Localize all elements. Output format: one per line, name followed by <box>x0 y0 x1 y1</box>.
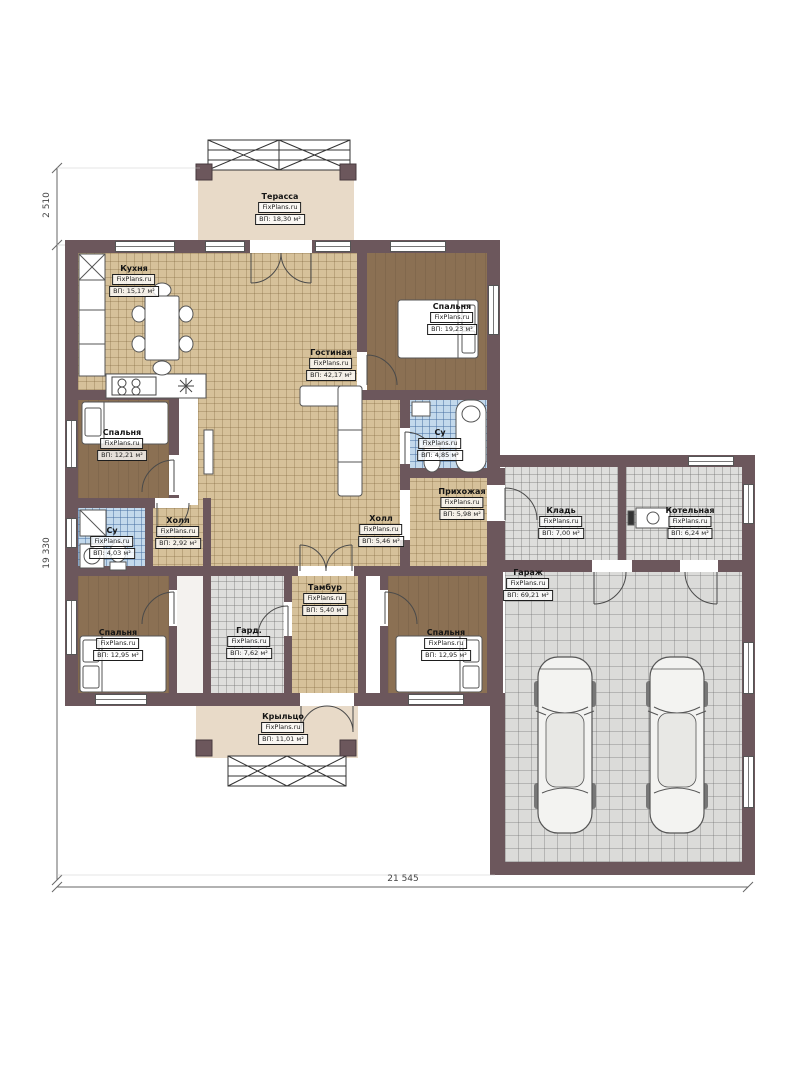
window <box>115 241 175 252</box>
window <box>315 241 351 252</box>
wall-hall-l-right <box>203 498 211 574</box>
door-gap-bedroom-br <box>380 590 388 626</box>
room-area: ВП: 4,03 м² <box>89 548 135 559</box>
window <box>66 420 77 468</box>
room-label-hall-l: Холл FixPlans.ru ВП: 2,92 м² <box>155 516 201 549</box>
wall-bedroom-tr-bottom <box>357 390 500 400</box>
room-name: Спальня <box>421 628 471 637</box>
door-gap-boiler-garage <box>680 560 718 572</box>
floor-garage <box>505 572 742 862</box>
terrace-roof <box>208 140 350 170</box>
wall-bath-r-bottom <box>400 468 500 478</box>
room-name: Спальня <box>97 428 147 437</box>
room-label-hallway: Прихожая FixPlans.ru ВП: 5,98 м² <box>438 487 485 520</box>
wall-bedroom-l-top <box>78 390 177 400</box>
room-name: Терасса <box>255 192 305 201</box>
room-area: ВП: 6,24 м² <box>667 528 713 539</box>
wall-bath-l-right <box>145 498 153 574</box>
room-site: FixPlans.ru <box>261 722 304 733</box>
window <box>408 694 464 705</box>
room-site: FixPlans.ru <box>540 516 583 527</box>
floor-closet <box>177 576 203 694</box>
room-label-bedroom-l: Спальня FixPlans.ru ВП: 12,21 м² <box>97 428 147 461</box>
door-gap-storage-garage <box>592 560 632 572</box>
room-site: FixPlans.ru <box>91 536 134 547</box>
room-area: ВП: 18,30 м² <box>255 214 305 225</box>
room-name: Холл <box>358 514 404 523</box>
floor-plan: Терасса FixPlans.ru ВП: 18,30 м² Кухня F… <box>0 0 792 1080</box>
room-area: ВП: 5,98 м² <box>439 509 485 520</box>
room-name: Кухня <box>109 264 159 273</box>
window <box>66 518 77 548</box>
porch-steps <box>228 756 346 786</box>
room-site: FixPlans.ru <box>100 438 143 449</box>
room-area: ВП: 69,21 м² <box>503 590 553 601</box>
room-name: Гараж <box>503 568 553 577</box>
room-label-terrace: Терасса FixPlans.ru ВП: 18,30 м² <box>255 192 305 225</box>
room-name: Тамбур <box>302 583 348 592</box>
door-gap-bedroom-bl <box>169 590 177 626</box>
wall-mid-horizontal <box>65 566 502 576</box>
wall-wing-bottom <box>495 862 755 875</box>
wall-wardrobe-left <box>203 576 211 696</box>
room-label-living: Гостиная FixPlans.ru ВП: 42,17 м² <box>306 348 356 381</box>
room-site: FixPlans.ru <box>506 578 549 589</box>
wall-wing-left <box>490 693 505 875</box>
wall-right-lower <box>487 572 503 693</box>
room-label-porch: Крыльцо FixPlans.ru ВП: 11,01 м² <box>258 712 308 745</box>
room-area: ВП: 19,23 м² <box>427 324 477 335</box>
room-site: FixPlans.ru <box>157 526 200 537</box>
room-name: Гостиная <box>306 348 356 357</box>
room-label-bath-r: Су FixPlans.ru ВП: 4,85 м² <box>417 428 463 461</box>
door-gap-bedroom-l <box>169 455 179 495</box>
room-name: Су <box>89 526 135 535</box>
room-area: ВП: 12,21 м² <box>97 450 147 461</box>
room-name: Холл <box>155 516 201 525</box>
wall-wardrobe-right <box>284 576 292 696</box>
room-name: Спальня <box>93 628 143 637</box>
door-gap-bath-r <box>400 428 410 464</box>
window <box>743 642 754 694</box>
room-name: Крыльцо <box>258 712 308 721</box>
room-name: Спальня <box>427 302 477 311</box>
room-label-boiler-room: Котельная FixPlans.ru ВП: 6,24 м² <box>665 506 714 539</box>
room-site: FixPlans.ru <box>419 438 462 449</box>
window <box>743 756 754 808</box>
room-name: Прихожая <box>438 487 485 496</box>
wall-tambour-right <box>358 576 366 696</box>
room-name: Гард. <box>226 626 272 635</box>
room-label-bedroom-tr: Спальня FixPlans.ru ВП: 19,23 м² <box>427 302 477 335</box>
window <box>488 285 499 335</box>
window <box>95 694 147 705</box>
window <box>688 456 734 466</box>
dimension-house-height: 19 330 <box>42 523 52 583</box>
door-gap-tambour <box>298 566 354 576</box>
wall-right-upper <box>487 240 500 468</box>
door-gap-terrace <box>250 240 312 253</box>
room-area: ВП: 7,00 м² <box>538 528 584 539</box>
room-label-hall-c: Холл FixPlans.ru ВП: 5,46 м² <box>358 514 404 547</box>
dimension-terrace-depth: 2 510 <box>42 175 52 235</box>
room-label-bedroom-br: Спальня FixPlans.ru ВП: 12,95 м² <box>421 628 471 661</box>
room-site: FixPlans.ru <box>424 638 467 649</box>
window <box>66 600 77 655</box>
room-site: FixPlans.ru <box>258 202 301 213</box>
room-site: FixPlans.ru <box>668 516 711 527</box>
room-label-tambour: Тамбур FixPlans.ru ВП: 5,40 м² <box>302 583 348 616</box>
room-label-bath-l: Су FixPlans.ru ВП: 4,03 м² <box>89 526 135 559</box>
room-area: ВП: 11,01 м² <box>258 734 308 745</box>
room-site: FixPlans.ru <box>430 312 473 323</box>
door-gap-wardrobe <box>284 602 292 636</box>
door-gap-storage <box>487 485 505 521</box>
room-site: FixPlans.ru <box>360 524 403 535</box>
room-label-storage: Кладь FixPlans.ru ВП: 7,00 м² <box>538 506 584 539</box>
room-area: ВП: 5,40 м² <box>302 605 348 616</box>
room-area: ВП: 42,17 м² <box>306 370 356 381</box>
room-area: ВП: 15,17 м² <box>109 286 159 297</box>
door-gap-bedroom-tr <box>357 352 367 390</box>
room-label-bedroom-bl: Спальня FixPlans.ru ВП: 12,95 м² <box>93 628 143 661</box>
room-area: ВП: 7,62 м² <box>226 648 272 659</box>
door-gap-bath-l <box>155 498 189 508</box>
room-site: FixPlans.ru <box>309 358 352 369</box>
room-label-garage: Гараж FixPlans.ru ВП: 69,21 м² <box>503 568 553 601</box>
room-site: FixPlans.ru <box>304 593 347 604</box>
room-area: ВП: 2,92 м² <box>155 538 201 549</box>
window <box>205 241 245 252</box>
room-area: ВП: 12,95 м² <box>93 650 143 661</box>
dimension-house-width: 21 545 <box>343 874 463 884</box>
room-area: ВП: 12,95 м² <box>421 650 471 661</box>
door-gap-porch <box>300 693 354 706</box>
room-name: Су <box>417 428 463 437</box>
room-area: ВП: 5,46 м² <box>358 536 404 547</box>
room-site: FixPlans.ru <box>96 638 139 649</box>
room-site: FixPlans.ru <box>228 636 271 647</box>
wall-storage-boiler <box>618 467 626 567</box>
room-site: FixPlans.ru <box>441 497 484 508</box>
room-label-wardrobe: Гард. FixPlans.ru ВП: 7,62 м² <box>226 626 272 659</box>
room-name: Котельная <box>665 506 714 515</box>
window <box>390 241 446 252</box>
room-name: Кладь <box>538 506 584 515</box>
room-area: ВП: 4,85 м² <box>417 450 463 461</box>
room-label-kitchen: Кухня FixPlans.ru ВП: 15,17 м² <box>109 264 159 297</box>
window <box>743 484 754 524</box>
room-site: FixPlans.ru <box>112 274 155 285</box>
